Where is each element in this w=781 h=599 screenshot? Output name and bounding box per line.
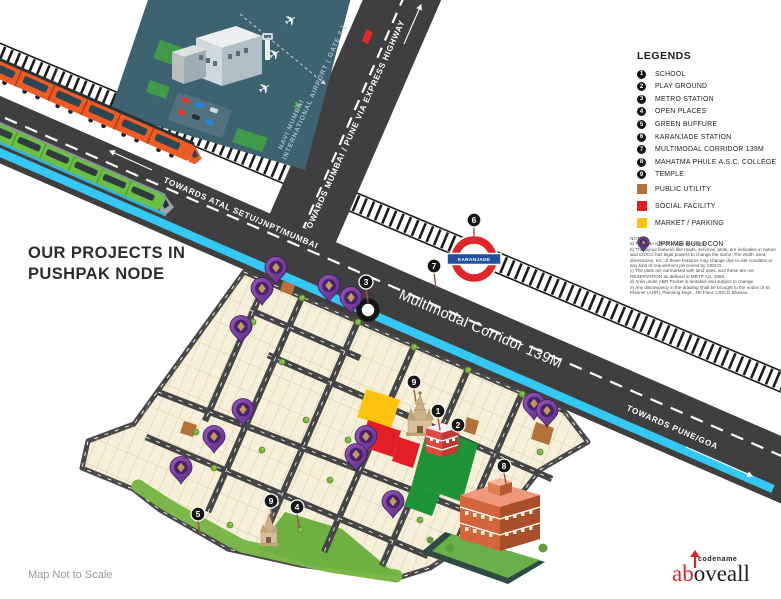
legend-item-market-parking: MARKET / PARKING [637,217,779,229]
logo-wordmark: aboveall [672,562,750,585]
legend-item-open-places: 4 OPEN PLACES [637,107,779,117]
legend-number-badge: 8 [637,158,646,167]
legend-panel: LEGENDS 1 SCHOOL 2 PLAY GROUND 3 METRO S… [637,50,779,253]
aboveall-logo: codename aboveall [668,550,778,592]
marker-4-open-places: 4 [295,502,300,512]
legend-item-green-buffer: 5 GREEN BUFFURE [637,119,779,129]
marker-7: 7 [432,261,437,271]
market-parking-swatch [637,218,647,228]
public-utility-swatch [637,184,647,194]
marker-5-buffer: 5 [196,509,201,519]
scale-note: Map Not to Scale [28,569,112,581]
legend-item-multimodal-corridor: 7 MULTIMODAL CORRIDOR 139M [637,144,779,154]
legend-number-badge: 2 [637,82,646,91]
pushpak-node-map-page: TOWARDS MUMBAI / PUNE VIA EXPRESS HIGHWA… [0,0,781,599]
notes-block: NOTES: a) This plan is NOT a legal docum… [630,236,778,295]
legend-item-school: 1 SCHOOL [637,69,779,79]
legend-number-badge: 7 [637,145,646,154]
metro-station-circle [359,301,377,319]
marker-9-temple: 9 [412,377,417,387]
legend-item-playground: 2 PLAY GROUND [637,82,779,92]
marker-1-school: 1 [436,406,441,416]
marker-9-temple-2: 9 [269,496,274,506]
legend-number-badge: 6 [637,133,646,142]
legend-heading: LEGENDS [637,50,779,62]
legend-number-badge: 9 [637,170,646,179]
legend-item-public-utility: PUBLIC UTILITY [637,183,779,195]
social-facility-swatch [637,201,647,211]
svg-text:KARANJADE: KARANJADE [458,257,491,263]
legend-number-badge: 1 [637,70,646,79]
marker-3: 3 [364,277,369,287]
marker-2-playground: 2 [456,420,461,430]
legend-item-temple: 9 TEMPLE [637,170,779,180]
legend-number-badge: 4 [637,107,646,116]
legend-item-metro-station: 3 METRO STATION [637,94,779,104]
legend-item-social-facility: SOCIAL FACILITY [637,200,779,212]
legend-item-college: 8 MAHATMA PHULE A.S.C. COLLEGE [637,157,779,167]
legend-item-karanjade-station: 6 KARANJADE STATION [637,132,779,142]
marker-6: 6 [472,215,477,225]
page-title: OUR PROJECTS IN PUSHPAK NODE [28,243,185,285]
legend-number-badge: 5 [637,120,646,129]
legend-number-badge: 3 [637,95,646,104]
marker-8-college: 8 [502,461,507,471]
